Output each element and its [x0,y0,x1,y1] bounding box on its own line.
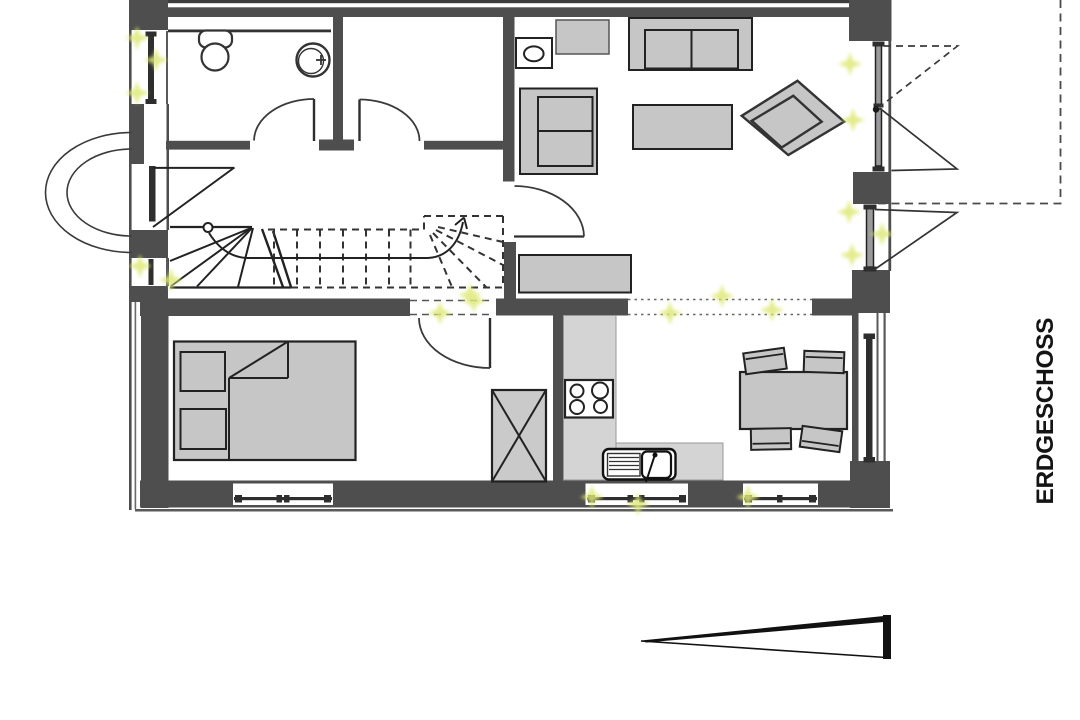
svg-text:ERDGESCHOSS: ERDGESCHOSS [1032,318,1059,505]
